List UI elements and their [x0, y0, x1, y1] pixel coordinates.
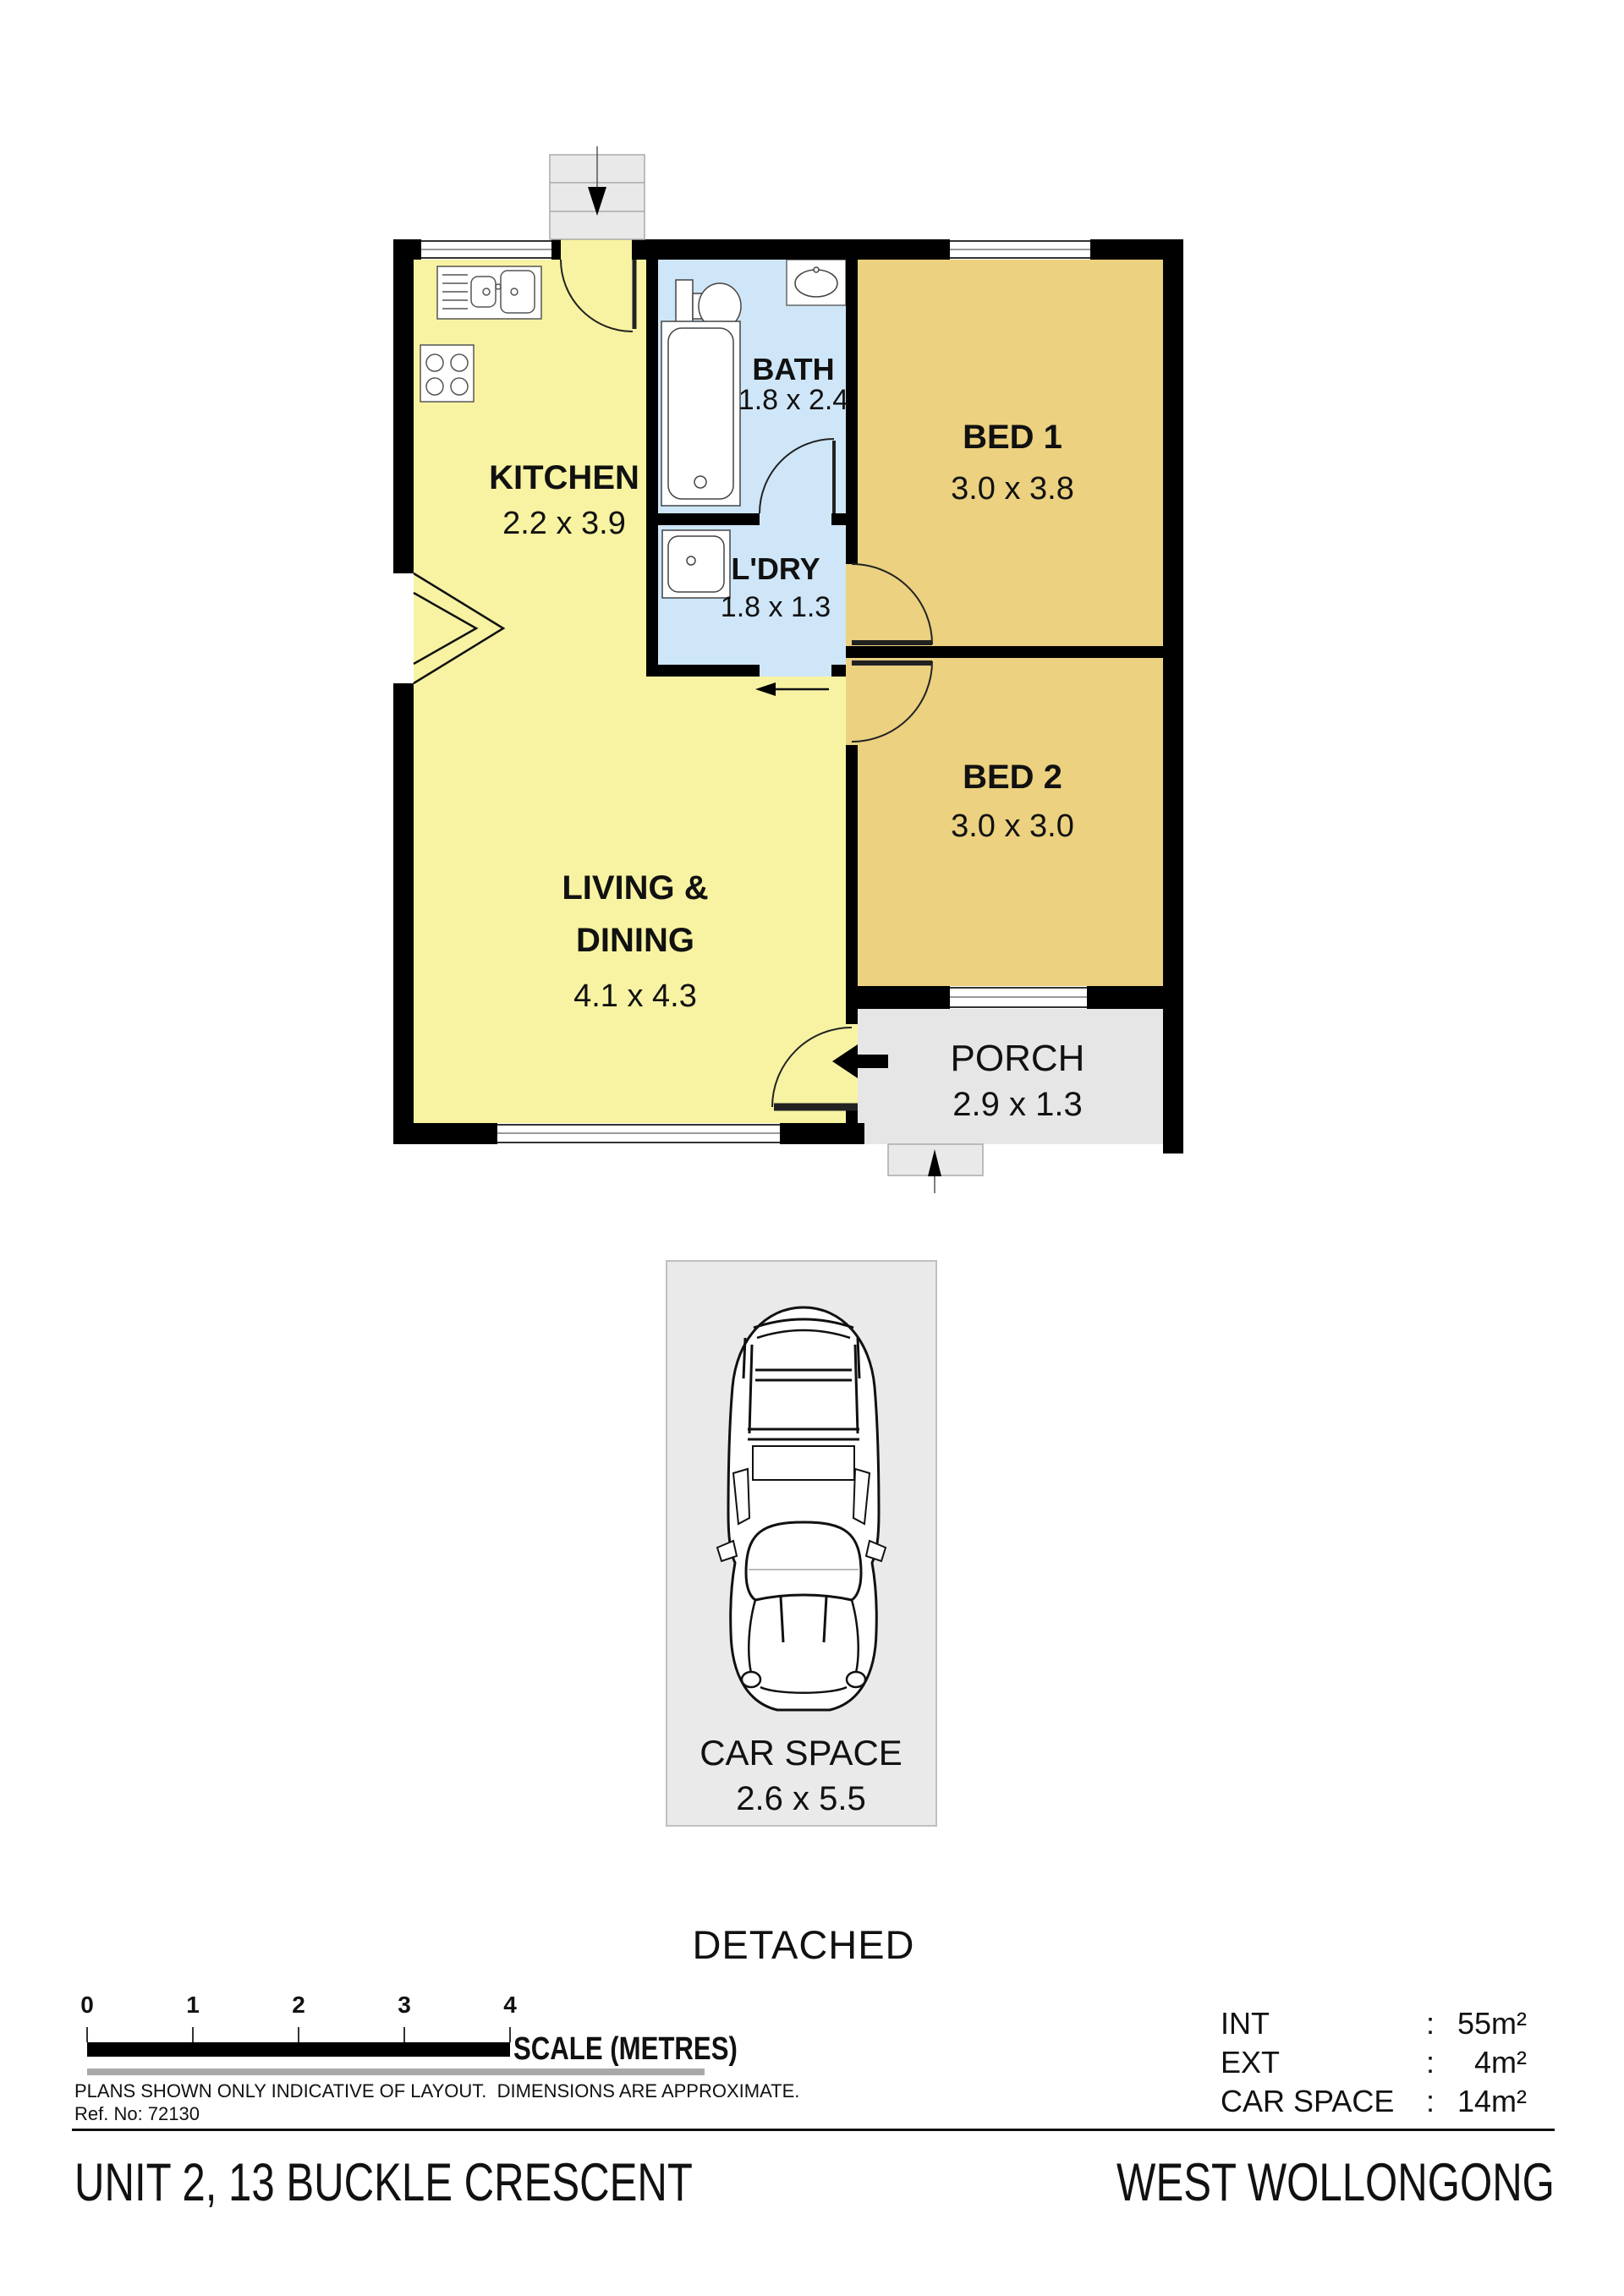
scale-tick	[86, 2027, 88, 2042]
kitchen-label: KITCHEN	[489, 459, 639, 496]
living-label-line2: DINING	[576, 922, 694, 959]
stove-icon	[420, 345, 474, 402]
scale-tick-label-2: 2	[292, 1992, 305, 2019]
laundry-door-gap	[760, 665, 831, 677]
area-row-value: 55m²	[1391, 2006, 1527, 2041]
area-row-label: INT	[1221, 2006, 1270, 2041]
basin-icon	[787, 260, 846, 305]
scale-grey-bar	[87, 2069, 705, 2075]
car-space-svg: CAR SPACE 2.6 x 5.5	[666, 1260, 937, 1827]
area-row-value: 4m²	[1391, 2045, 1527, 2080]
scale-bar-rule	[87, 2042, 510, 2057]
car-space-dims: 2.6 x 5.5	[736, 1780, 865, 1817]
building-type-label: DETACHED	[0, 1921, 1607, 1968]
bed1-window	[950, 239, 1090, 260]
laundry-tub-icon	[662, 530, 730, 598]
scale-tick-label-4: 4	[503, 1992, 517, 2019]
floor-plan-page: KITCHEN 2.2 x 3.9 BATH 1.8 x 2.4 L'DRY 1…	[0, 0, 1624, 2296]
scale-bar-label: SCALE (METRES)	[513, 2031, 738, 2068]
laundry-dims: 1.8 x 1.3	[721, 591, 831, 623]
stairs-icon	[550, 146, 645, 239]
living-label-line1: LIVING &	[562, 869, 708, 907]
car-space-label: CAR SPACE	[700, 1733, 903, 1773]
bathtub-icon	[661, 321, 740, 506]
property-address: UNIT 2, 13 BUCKLE CRESCENT	[74, 2152, 693, 2213]
bath-dims: 1.8 x 2.4	[738, 384, 848, 416]
car-headlight-right-icon	[847, 1672, 865, 1687]
living-window	[497, 1123, 780, 1144]
laundry-label: L'DRY	[731, 551, 820, 586]
car-headlight-left-icon	[742, 1672, 760, 1687]
floor-plan-svg: KITCHEN 2.2 x 3.9 BATH 1.8 x 2.4 L'DRY 1…	[393, 146, 1184, 1195]
kitchen-sink-icon	[437, 266, 541, 319]
disclaimer-text: PLANS SHOWN ONLY INDICATIVE OF LAYOUT. D…	[74, 2080, 799, 2102]
area-row-value: 14m²	[1391, 2084, 1527, 2119]
area-row-label: EXT	[1221, 2045, 1280, 2080]
bath-label: BATH	[752, 352, 834, 386]
scale-tick-label-1: 1	[186, 1992, 200, 2019]
area-row-label: CAR SPACE	[1221, 2084, 1394, 2119]
bed2-window	[950, 986, 1087, 1009]
footer-divider	[72, 2129, 1555, 2131]
bed2-label: BED 2	[963, 759, 1062, 796]
property-locality: WEST WOLLONGONG	[1116, 2152, 1555, 2213]
living-dims: 4.1 x 4.3	[573, 978, 697, 1014]
porch-label: PORCH	[951, 1038, 1085, 1079]
scale-tick-label-0: 0	[80, 1992, 94, 2019]
scale-tick-label-3: 3	[398, 1992, 411, 2019]
bed1-dims: 3.0 x 3.8	[951, 471, 1074, 507]
kitchen-dims: 2.2 x 3.9	[502, 506, 626, 541]
kitchen-window	[421, 239, 551, 260]
bed2-door-gap	[846, 658, 858, 745]
bed1-label: BED 1	[963, 419, 1062, 456]
scale-tick	[298, 2027, 299, 2042]
car-icon	[717, 1307, 886, 1710]
bed1-door-gap	[846, 564, 858, 646]
bed2-dims: 3.0 x 3.0	[951, 808, 1074, 844]
scale-tick	[192, 2027, 194, 2042]
porch-dims: 2.9 x 1.3	[952, 1086, 1082, 1123]
porch-step-icon	[888, 1144, 983, 1193]
bath-door-gap	[760, 513, 831, 525]
kitchen-door-gap	[561, 239, 632, 260]
scale-tick	[403, 2027, 405, 2042]
ref-number: Ref. No: 72130	[74, 2103, 200, 2125]
scale-tick	[509, 2027, 511, 2042]
